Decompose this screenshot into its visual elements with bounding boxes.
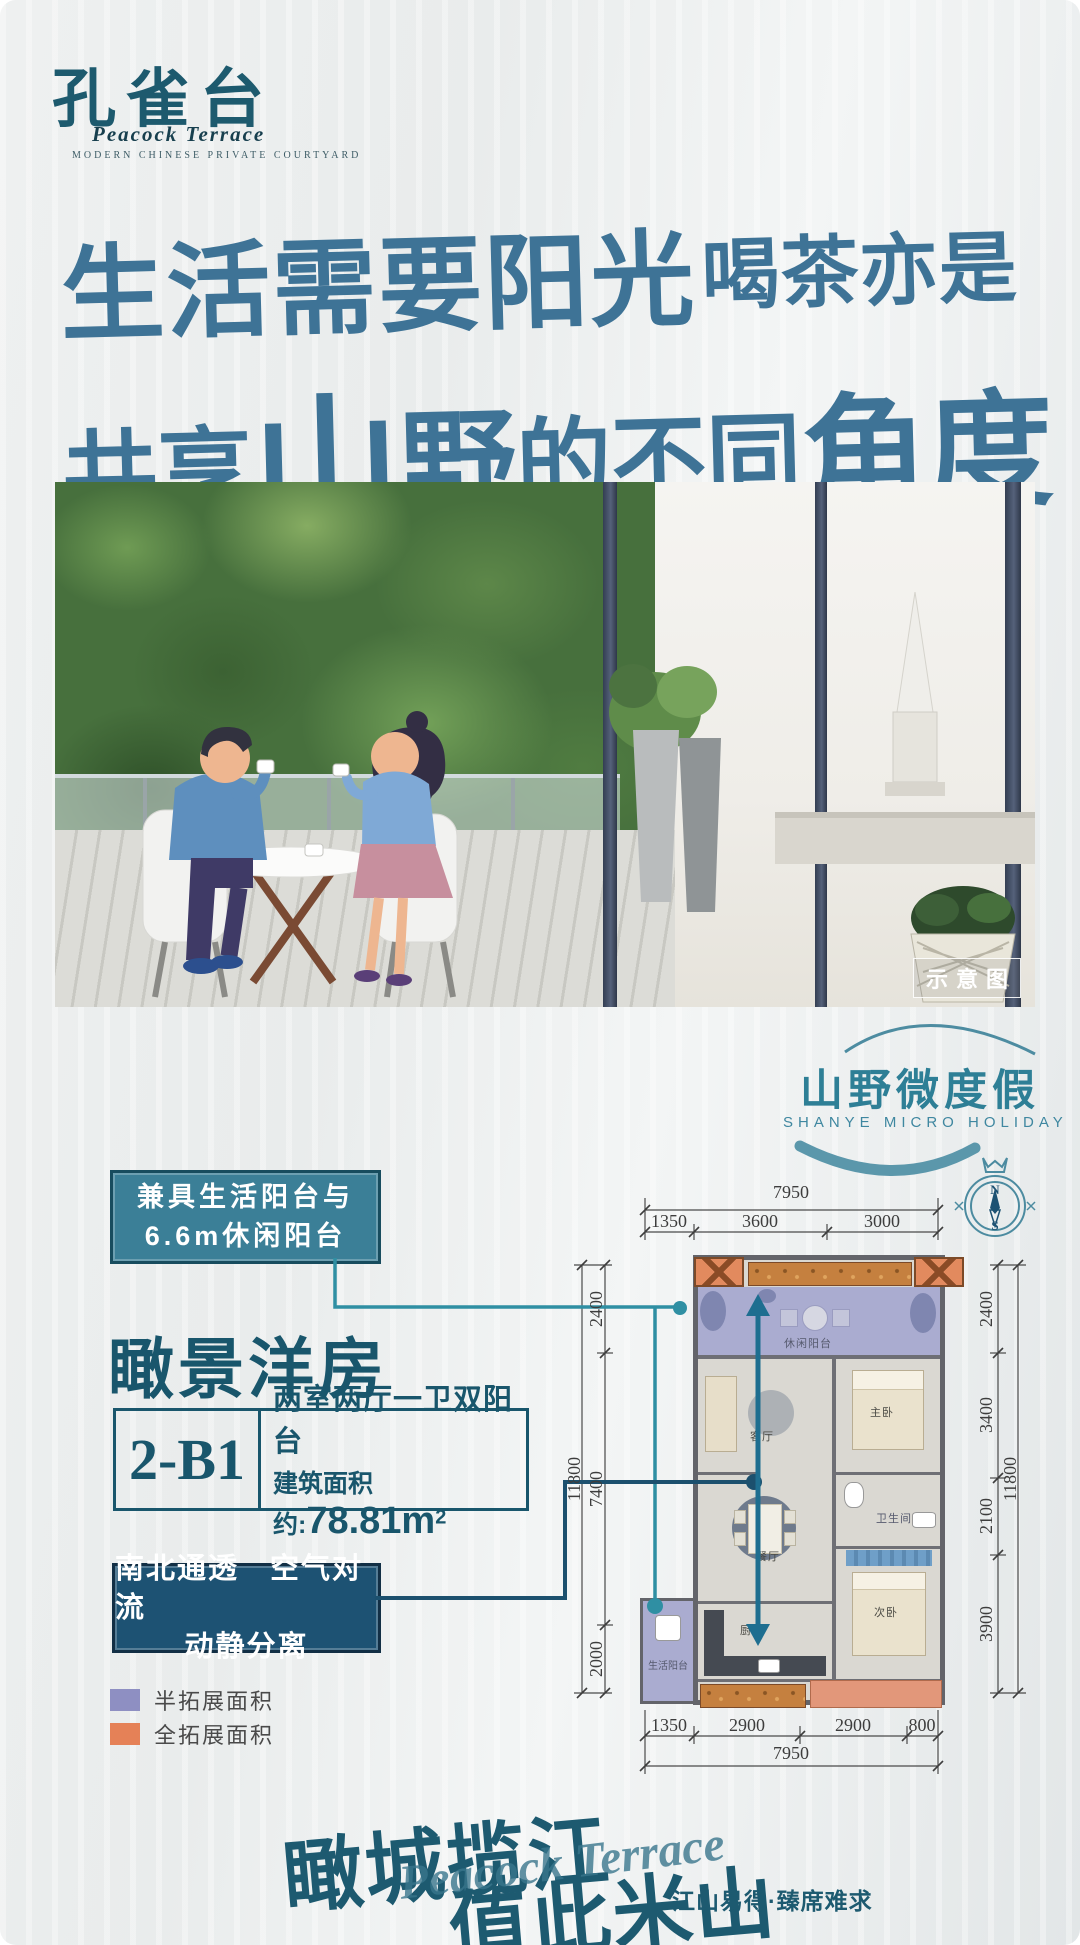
dim-bottom-seg: 800: [879, 1716, 965, 1734]
dim-right-seg: 2400: [977, 1266, 995, 1352]
dim-left-seg: 2400: [587, 1266, 605, 1352]
dim-bottom-total: 7950: [748, 1744, 834, 1762]
dim-left-seg: 7400: [587, 1446, 605, 1532]
dim-left-total: 11800: [565, 1436, 583, 1522]
dim-bottom-seg: 2900: [704, 1716, 790, 1734]
dim-top-seg: 3600: [717, 1212, 803, 1230]
compass-south: S: [991, 1218, 998, 1234]
compass-north: N: [990, 1182, 999, 1198]
floorplan-lines: [0, 0, 1080, 1945]
dim-right-total: 11800: [1001, 1436, 1019, 1522]
dim-right-seg: 3400: [977, 1372, 995, 1458]
dim-top-total: 7950: [748, 1183, 834, 1201]
dim-right-seg: 3900: [977, 1581, 995, 1667]
footer-tagline: 江山易得·臻席难求: [672, 1882, 873, 1916]
dim-bottom-seg: 1350: [626, 1716, 712, 1734]
poster: 孔雀台 Peacock Terrace MODERN CHINESE PRIVA…: [0, 0, 1080, 1945]
dim-top-seg: 1350: [626, 1212, 712, 1230]
dim-top-seg: 3000: [839, 1212, 925, 1230]
dim-left-seg: 2000: [587, 1616, 605, 1702]
dim-right-seg: 2100: [977, 1473, 995, 1559]
